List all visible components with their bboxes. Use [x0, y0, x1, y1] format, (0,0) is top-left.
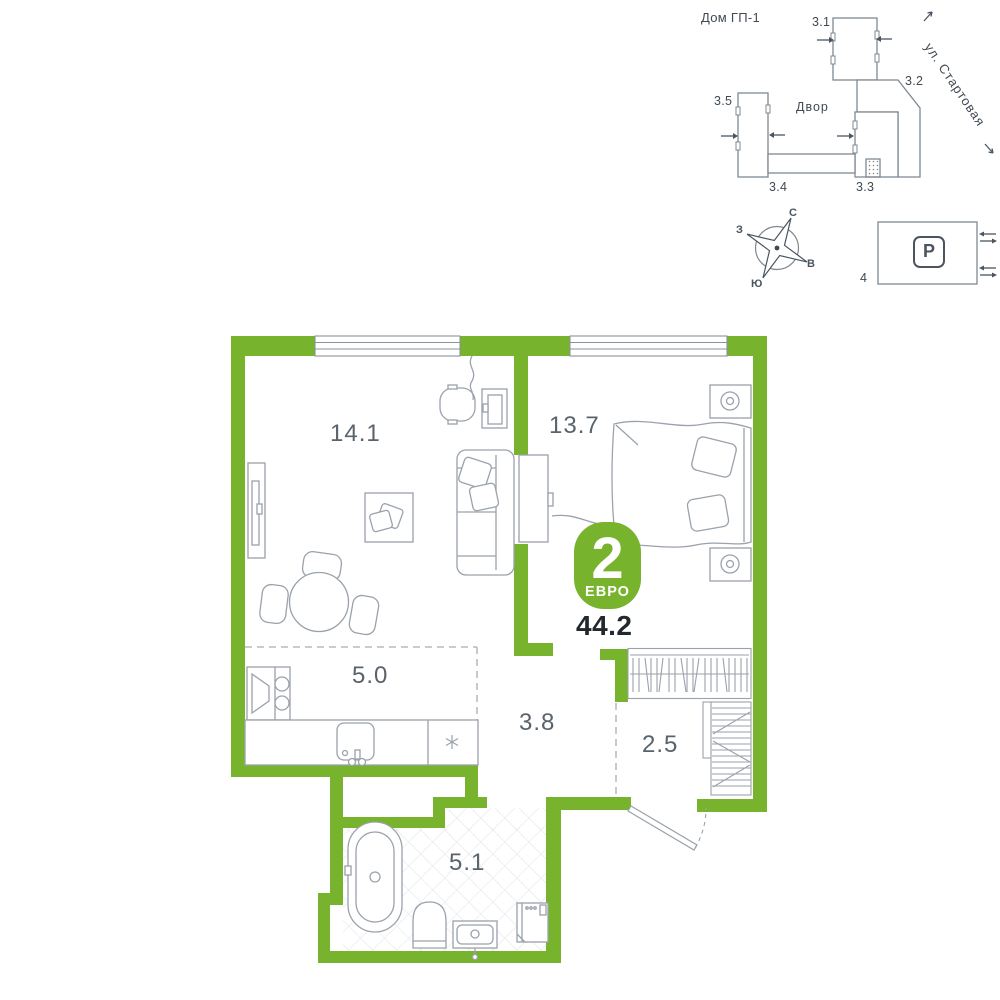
entrance-door-leaf [628, 806, 697, 850]
nightstand-top [710, 385, 751, 418]
building-3-2-label: 3.2 [905, 74, 923, 88]
furniture-living-room [248, 356, 514, 636]
double-bed [612, 421, 751, 547]
total-area: 44.2 [576, 610, 633, 642]
building-3-5-label: 3.5 [714, 94, 732, 108]
site-building-3-1 [833, 18, 877, 80]
room-area-bedroom: 13.7 [549, 412, 600, 440]
living-room-window [315, 336, 460, 356]
room-area-living: 14.1 [330, 420, 381, 448]
layout-type-label: ЕВРО [585, 584, 630, 600]
sofa [457, 450, 514, 575]
compass-rose [747, 218, 807, 278]
compass-south-label: Ю [751, 278, 762, 290]
building-3-1-label: 3.1 [812, 15, 830, 29]
parking-arrows [979, 232, 997, 278]
site-building-3-5 [738, 93, 768, 177]
bedroom-window [570, 336, 727, 356]
rooms-count: 2 [591, 531, 623, 586]
site-house-label: Дом ГП-1 [701, 10, 760, 25]
toilet [413, 902, 446, 948]
room-area-kitchen: 5.0 [352, 662, 388, 690]
parking-number-label: 4 [860, 271, 867, 285]
room-area-hallway: 3.8 [519, 709, 555, 737]
compass-north-label: С [789, 207, 797, 219]
floorplan-graphics [0, 0, 1000, 1000]
shelving-unit [703, 702, 751, 795]
room-area-wardrobe: 2.5 [642, 731, 678, 759]
pouf-table [365, 493, 413, 542]
desk-chair [440, 385, 475, 424]
tv-console [248, 463, 265, 558]
floorplan-page: Дом ГП-1 3.1 3.2 3.5 Двор 3.4 3.3 ул. Ст… [0, 0, 1000, 1000]
parking-icon: P [913, 236, 945, 268]
nightstand-bottom [710, 548, 751, 581]
desk [482, 389, 507, 428]
building-3-4-label: 3.4 [769, 180, 787, 194]
room-area-bathroom: 5.1 [449, 849, 485, 877]
media-console [519, 455, 553, 542]
entrance-door [628, 806, 706, 850]
bathtub [345, 822, 402, 932]
wardrobe-unit [628, 649, 751, 699]
apartment-type-badge: 2 ЕВРО [574, 522, 641, 609]
stove-unit [247, 667, 290, 720]
dining-table-set [259, 550, 380, 635]
site-building-3-4 [768, 154, 855, 173]
kitchen-sink [337, 723, 374, 766]
washing-machine [517, 903, 548, 942]
compass-west-label: З [736, 224, 743, 236]
building-3-3-label: 3.3 [856, 180, 874, 194]
compass-east-label: В [807, 258, 815, 270]
courtyard-label: Двор [796, 100, 829, 114]
site-current-section-marker [866, 159, 880, 177]
entrance-door-swing-arc [695, 808, 706, 848]
